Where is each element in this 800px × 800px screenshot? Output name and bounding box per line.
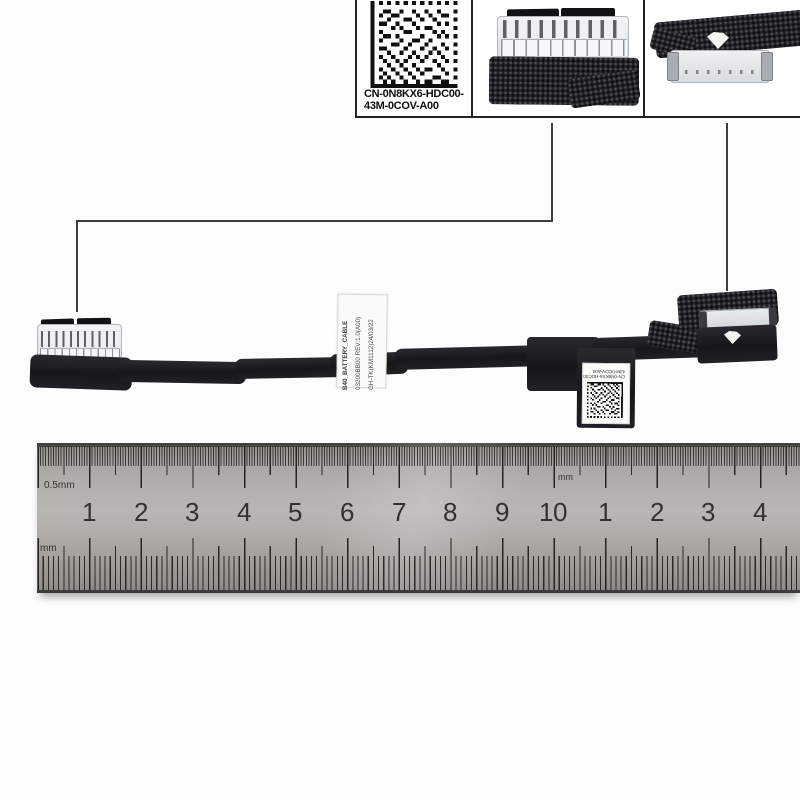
ruler-number: 2 <box>134 497 148 528</box>
ruler-number: 3 <box>701 497 715 528</box>
ruler-numbers: 123456789101234 <box>0 0 800 600</box>
ruler-number: 4 <box>753 497 767 528</box>
ruler-number: 7 <box>392 497 406 528</box>
ruler-number: 8 <box>443 497 457 528</box>
ruler-number: 3 <box>185 497 199 528</box>
product-photo: CN-0N8KX6-HDC00- 43M-0COV-A00 <box>0 0 800 800</box>
ruler-number: 9 <box>495 497 509 528</box>
ruler-number: 4 <box>237 497 251 528</box>
ruler-number: 2 <box>650 497 664 528</box>
ruler-number: 10 <box>539 497 567 528</box>
ruler-number: 6 <box>340 497 354 528</box>
ruler-number: 1 <box>598 497 612 528</box>
ruler-number: 1 <box>82 497 96 528</box>
ruler-number: 5 <box>288 497 302 528</box>
